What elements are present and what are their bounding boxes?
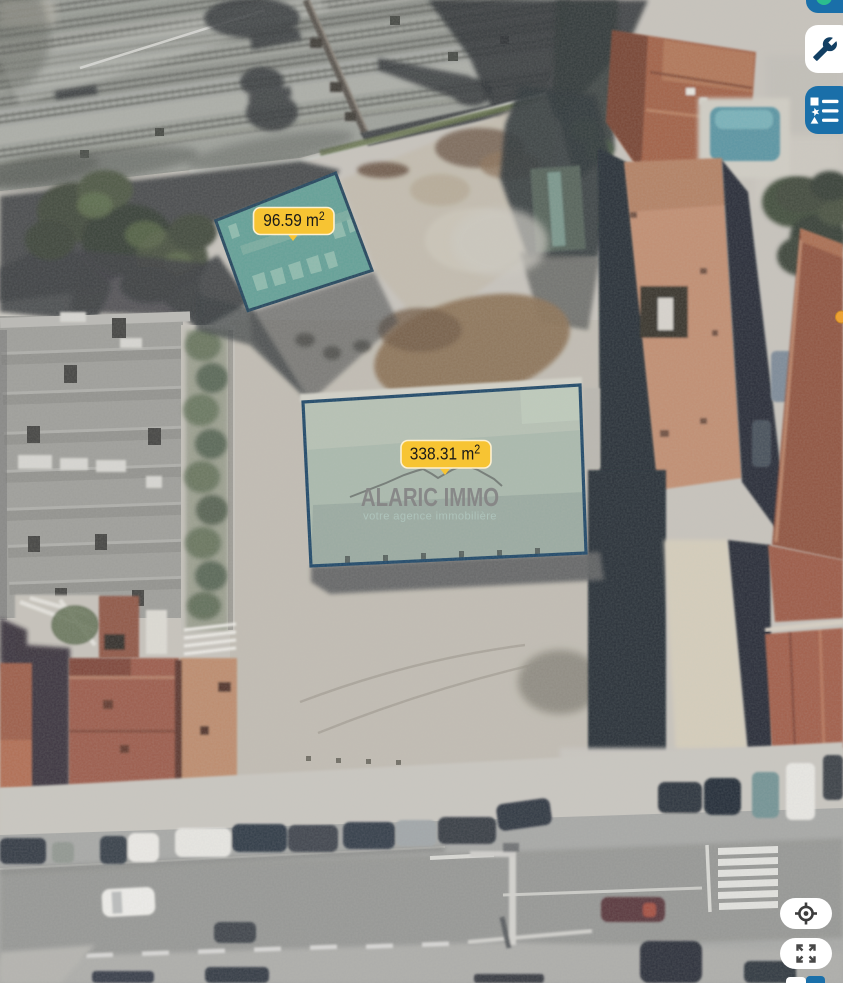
- svg-text:ALARIC IMMO: ALARIC IMMO: [361, 483, 499, 512]
- svg-text:votre agence immobilière: votre agence immobilière: [363, 510, 497, 522]
- svg-text:96.59 m2: 96.59 m2: [263, 210, 324, 230]
- svg-text:338.31 m2: 338.31 m2: [410, 443, 480, 464]
